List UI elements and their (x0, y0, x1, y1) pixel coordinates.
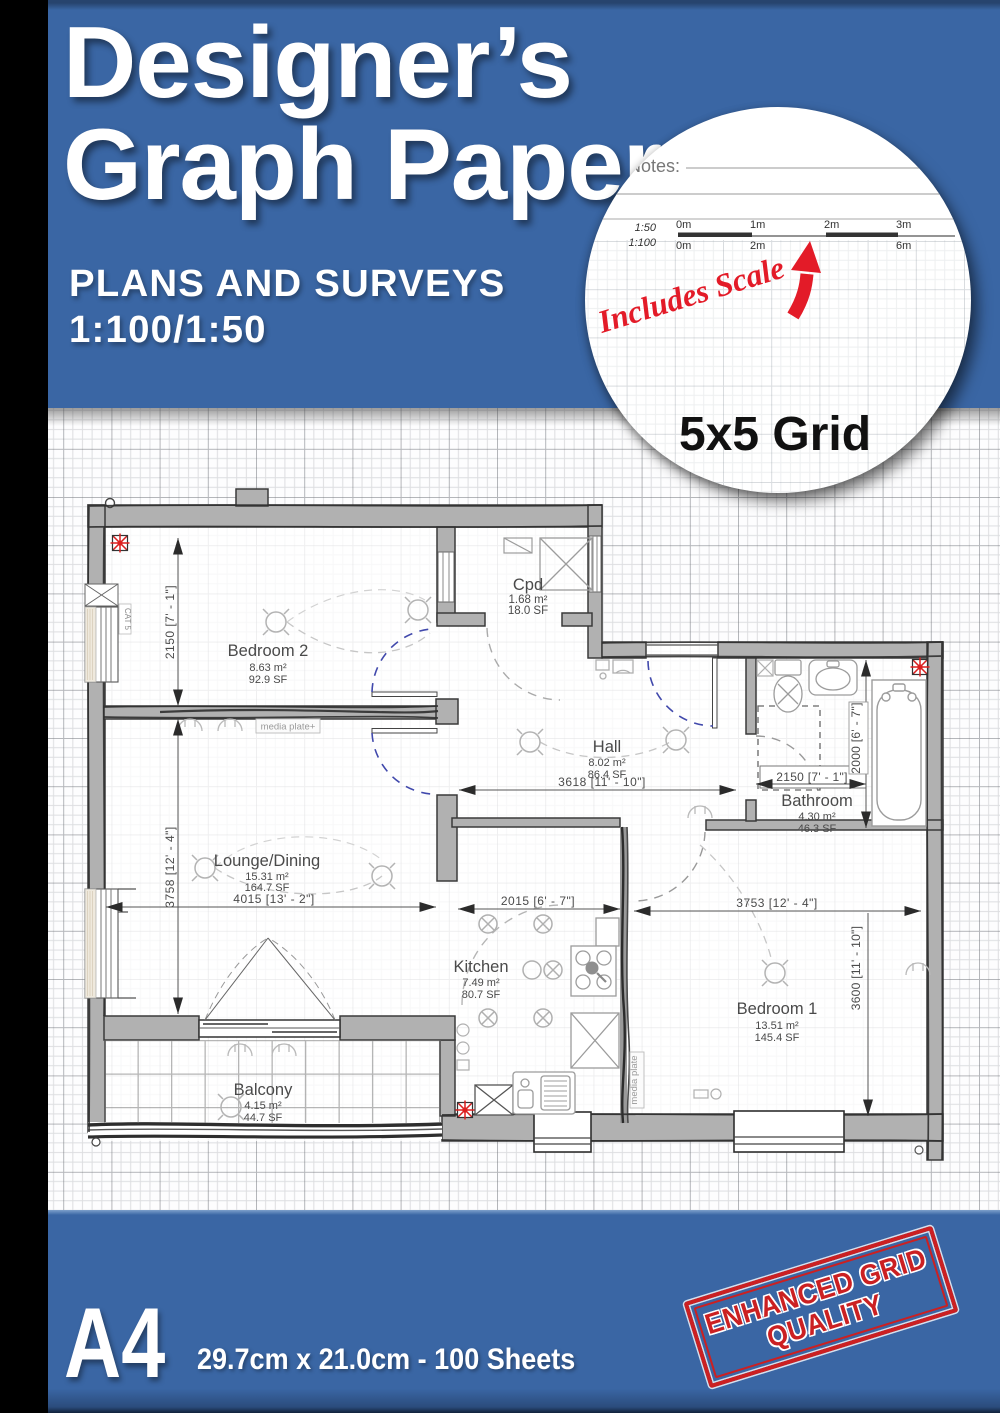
svg-text:92.9 SF: 92.9 SF (249, 674, 288, 686)
svg-text:44.7 SF: 44.7 SF (244, 1112, 283, 1124)
svg-text:2150 [7' - 1"]: 2150 [7' - 1"] (776, 770, 847, 784)
svg-text:8.02 m²: 8.02 m² (588, 757, 626, 769)
svg-text:2150 [7' - 1"]: 2150 [7' - 1"] (163, 585, 177, 659)
svg-text:CAT 5: CAT 5 (123, 608, 132, 630)
svg-text:5x5 Grid: 5x5 Grid (679, 408, 871, 461)
svg-text:46.3 SF: 46.3 SF (798, 823, 837, 835)
svg-text:media plate: media plate (629, 1055, 640, 1104)
svg-text:1:100: 1:100 (628, 237, 656, 249)
svg-text:0m: 0m (676, 219, 691, 231)
svg-text:2015 [6' - 7"]: 2015 [6' - 7"] (501, 894, 575, 908)
svg-text:18.0 SF: 18.0 SF (508, 605, 548, 617)
svg-text:7.49 m²: 7.49 m² (462, 977, 500, 989)
svg-text:Bedroom 2: Bedroom 2 (228, 642, 309, 660)
svg-text:80.7 SF: 80.7 SF (462, 989, 501, 1001)
svg-text:Balcony: Balcony (234, 1081, 293, 1099)
svg-text:164.7 SF: 164.7 SF (245, 882, 290, 894)
svg-text:4015 [13' - 2"]: 4015 [13' - 2"] (233, 892, 314, 906)
svg-text:Bathroom: Bathroom (781, 792, 853, 810)
svg-text:145.4 SF: 145.4 SF (755, 1032, 800, 1044)
svg-text:2000 [6' - 7"]: 2000 [6' - 7"] (849, 702, 863, 773)
svg-text:Kitchen: Kitchen (453, 958, 508, 976)
svg-text:3600 [11' - 10"]: 3600 [11' - 10"] (849, 926, 863, 1011)
svg-text:Hall: Hall (593, 738, 621, 756)
svg-text:Cpd: Cpd (513, 576, 543, 594)
svg-text:4.30 m²: 4.30 m² (798, 811, 836, 823)
svg-text:Bedroom 1: Bedroom 1 (737, 1000, 818, 1018)
svg-text:4.15 m²: 4.15 m² (244, 1100, 282, 1112)
svg-text:8.63 m²: 8.63 m² (249, 662, 287, 674)
svg-text:Notes:: Notes: (628, 156, 680, 176)
svg-text:13.51 m²: 13.51 m² (755, 1020, 799, 1032)
svg-text:Lounge/Dining: Lounge/Dining (214, 852, 320, 870)
svg-text:0m: 0m (676, 240, 691, 252)
svg-text:2m: 2m (824, 219, 839, 231)
svg-text:1m: 1m (750, 219, 765, 231)
svg-text:3753 [12' - 4"]: 3753 [12' - 4"] (736, 896, 817, 910)
svg-text:1:50: 1:50 (635, 222, 657, 234)
svg-text:6m: 6m (896, 240, 911, 252)
svg-text:media plate+: media plate+ (261, 722, 316, 733)
svg-text:86.4 SF: 86.4 SF (588, 769, 627, 781)
svg-text:2m: 2m (750, 240, 765, 252)
svg-text:3758 [12' - 4"]: 3758 [12' - 4"] (163, 826, 177, 907)
svg-text:3m: 3m (896, 219, 911, 231)
